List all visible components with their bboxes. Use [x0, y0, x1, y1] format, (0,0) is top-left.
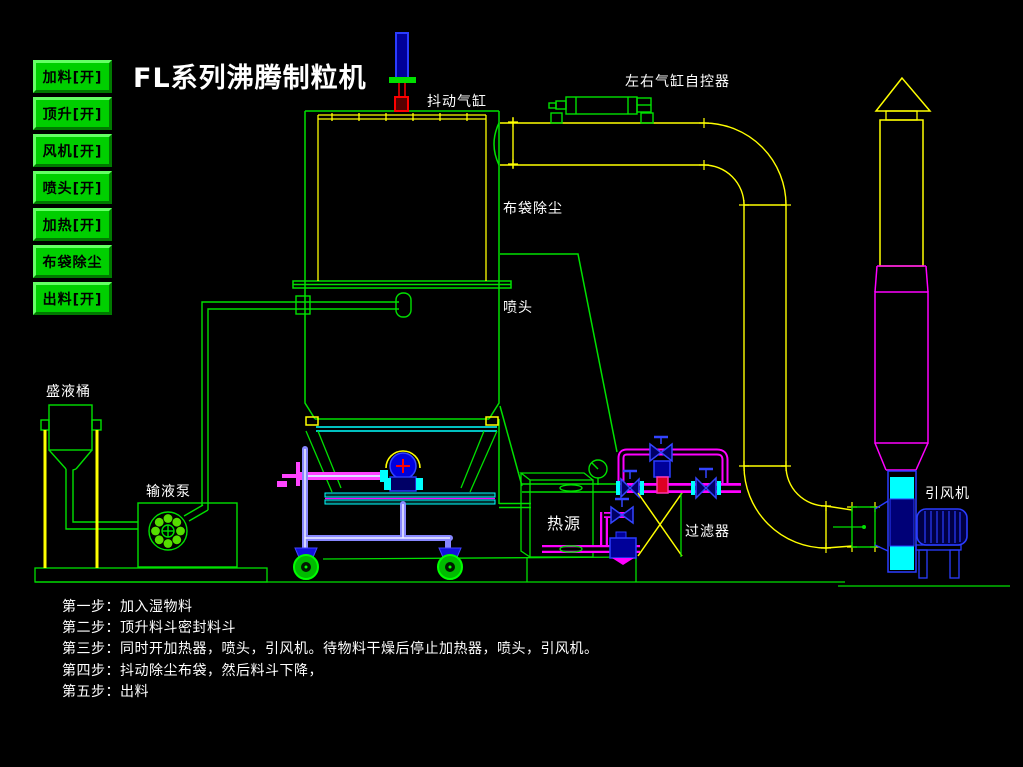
button-bag-dust[interactable]: 布袋除尘 [33, 245, 112, 278]
step-line: 第四步：抖动除尘布袋，然后料斗下降， [62, 661, 599, 682]
ground-lines [35, 557, 1010, 586]
label-fan: 引风机 [925, 483, 970, 503]
label-bag-dust: 布袋除尘 [503, 198, 563, 218]
button-feed[interactable]: 加料[开] [33, 60, 112, 93]
label-heat-source: 热源 [547, 510, 581, 534]
liquid-tank [41, 405, 138, 568]
label-liquid-pump: 输液泵 [146, 481, 191, 501]
button-fan[interactable]: 风机[开] [33, 134, 112, 167]
label-filter: 过滤器 [685, 521, 730, 541]
label-shake-cylinder: 抖动气缸 [427, 91, 487, 111]
step-line: 第三步：同时开加热器，喷头，引风机。待物料干燥后停止加热器，喷头，引风机。 [62, 639, 599, 660]
button-spray[interactable]: 喷头[开] [33, 171, 112, 204]
shake-cylinder [389, 33, 416, 111]
step-line: 第五步：出料 [62, 682, 599, 703]
button-lift[interactable]: 顶升[开] [33, 97, 112, 130]
procedure-steps: 第一步：加入湿物料 第二步：顶升料斗密封料斗 第三步：同时开加热器，喷头，引风机… [62, 597, 599, 703]
heater-and-filter [610, 493, 682, 565]
bag-filter-frame [318, 113, 486, 281]
page-title: FL系列沸腾制粒机 [133, 56, 367, 95]
label-spray-head: 喷头 [503, 297, 533, 317]
cyclone-stack [875, 78, 930, 470]
trolley-frame [294, 449, 462, 579]
step-line: 第一步：加入湿物料 [62, 597, 599, 618]
hmi-screen: FL系列沸腾制粒机 加料[开] 顶升[开] 风机[开] 喷头[开] 加热[开] … [0, 0, 1023, 767]
step-line: 第二步：顶升料斗密封料斗 [62, 618, 599, 639]
liquid-pump [138, 503, 237, 567]
button-heat[interactable]: 加热[开] [33, 208, 112, 241]
label-lr-cylinder-controller: 左右气缸自控器 [625, 71, 730, 91]
lr-cylinder-device [549, 97, 653, 123]
label-liquid-tank: 盛液桶 [46, 381, 91, 401]
supply-pipe [522, 460, 632, 492]
button-discharge[interactable]: 出料[开] [33, 282, 112, 315]
bowl-motor [384, 451, 423, 491]
